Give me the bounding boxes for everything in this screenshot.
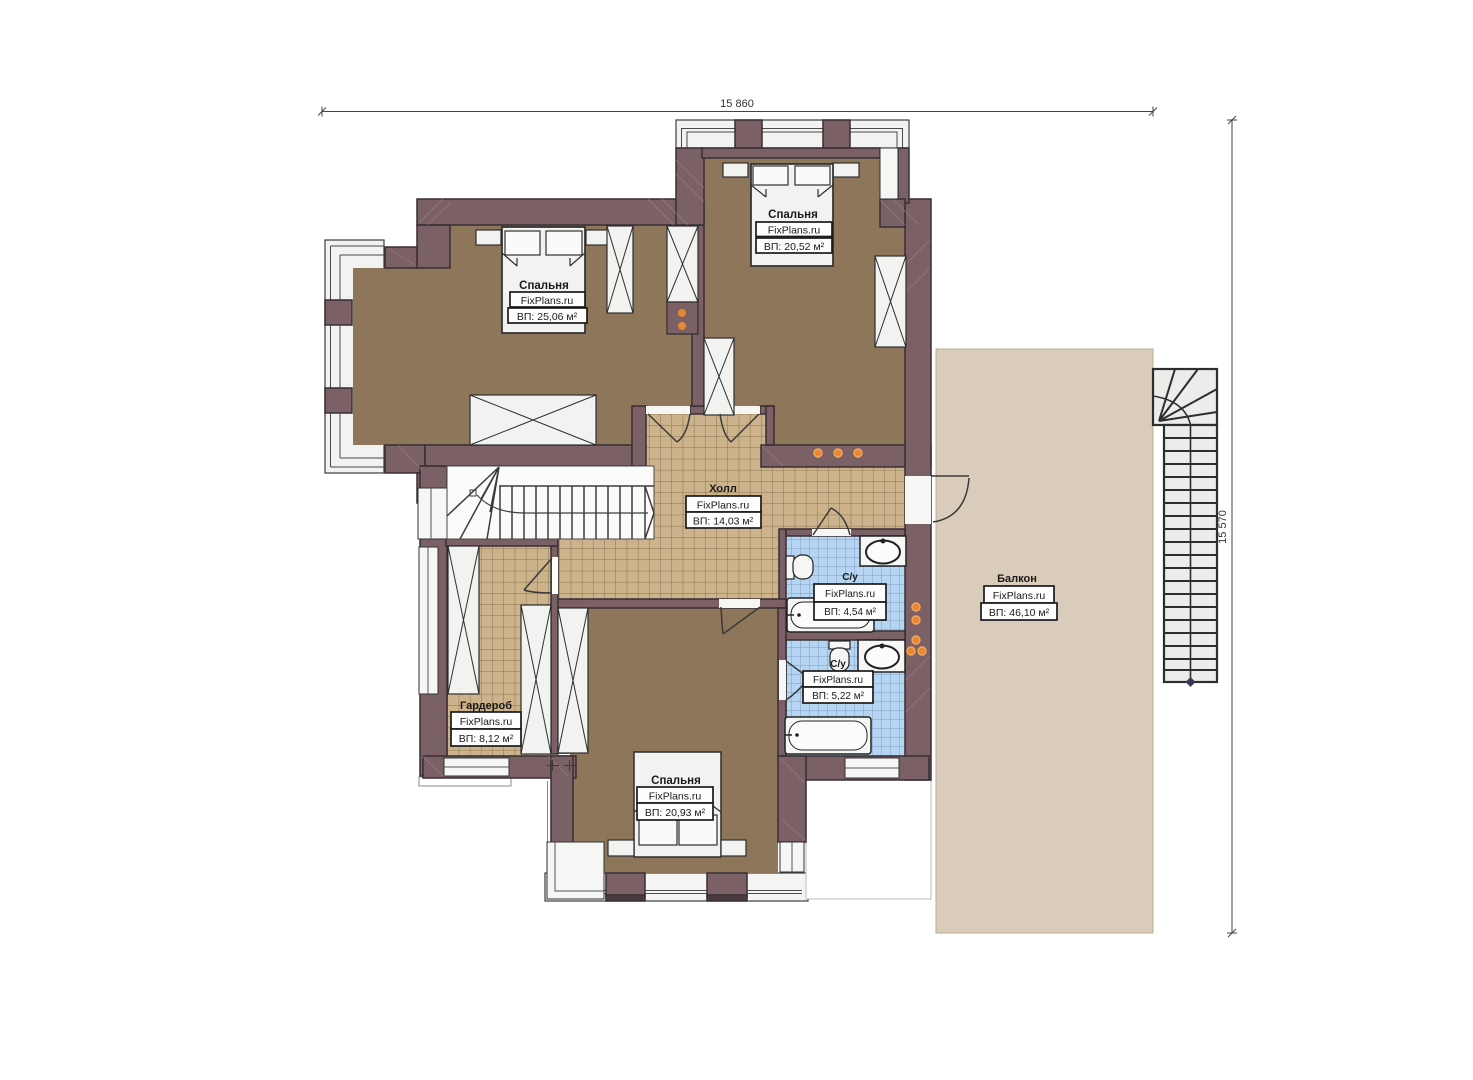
svg-text:FixPlans.ru: FixPlans.ru [649,791,702,803]
svg-text:Спальня: Спальня [519,280,569,292]
svg-text:Балкон: Балкон [997,573,1037,585]
svg-text:Гардероб: Гардероб [460,700,512,712]
svg-text:FixPlans.ru: FixPlans.ru [460,716,513,728]
svg-text:ВП: 25,06 м²: ВП: 25,06 м² [517,311,578,323]
svg-text:ВП: 14,03 м²: ВП: 14,03 м² [693,516,754,528]
svg-text:ВП: 8,12 м²: ВП: 8,12 м² [459,733,514,745]
svg-text:Холл: Холл [709,483,737,495]
svg-text:ВП: 20,93 м²: ВП: 20,93 м² [645,807,706,819]
svg-text:FixPlans.ru: FixPlans.ru [768,225,821,237]
svg-text:FixPlans.ru: FixPlans.ru [825,589,875,600]
svg-text:ВП: 20,52 м²: ВП: 20,52 м² [764,241,825,253]
svg-text:Спальня: Спальня [651,775,701,787]
svg-text:FixPlans.ru: FixPlans.ru [697,500,750,512]
svg-text:С/у: С/у [842,572,858,583]
svg-text:ВП: 5,22 м²: ВП: 5,22 м² [812,691,865,702]
svg-text:FixPlans.ru: FixPlans.ru [813,675,863,686]
svg-text:С/у: С/у [830,659,846,670]
svg-text:ВП: 4,54 м²: ВП: 4,54 м² [824,607,877,618]
svg-text:Спальня: Спальня [768,209,818,221]
svg-text:15 860: 15 860 [720,98,754,110]
svg-text:FixPlans.ru: FixPlans.ru [993,590,1046,602]
svg-text:ВП: 46,10 м²: ВП: 46,10 м² [989,607,1050,619]
svg-text:15 570: 15 570 [1217,510,1229,544]
svg-text:FixPlans.ru: FixPlans.ru [521,295,574,307]
